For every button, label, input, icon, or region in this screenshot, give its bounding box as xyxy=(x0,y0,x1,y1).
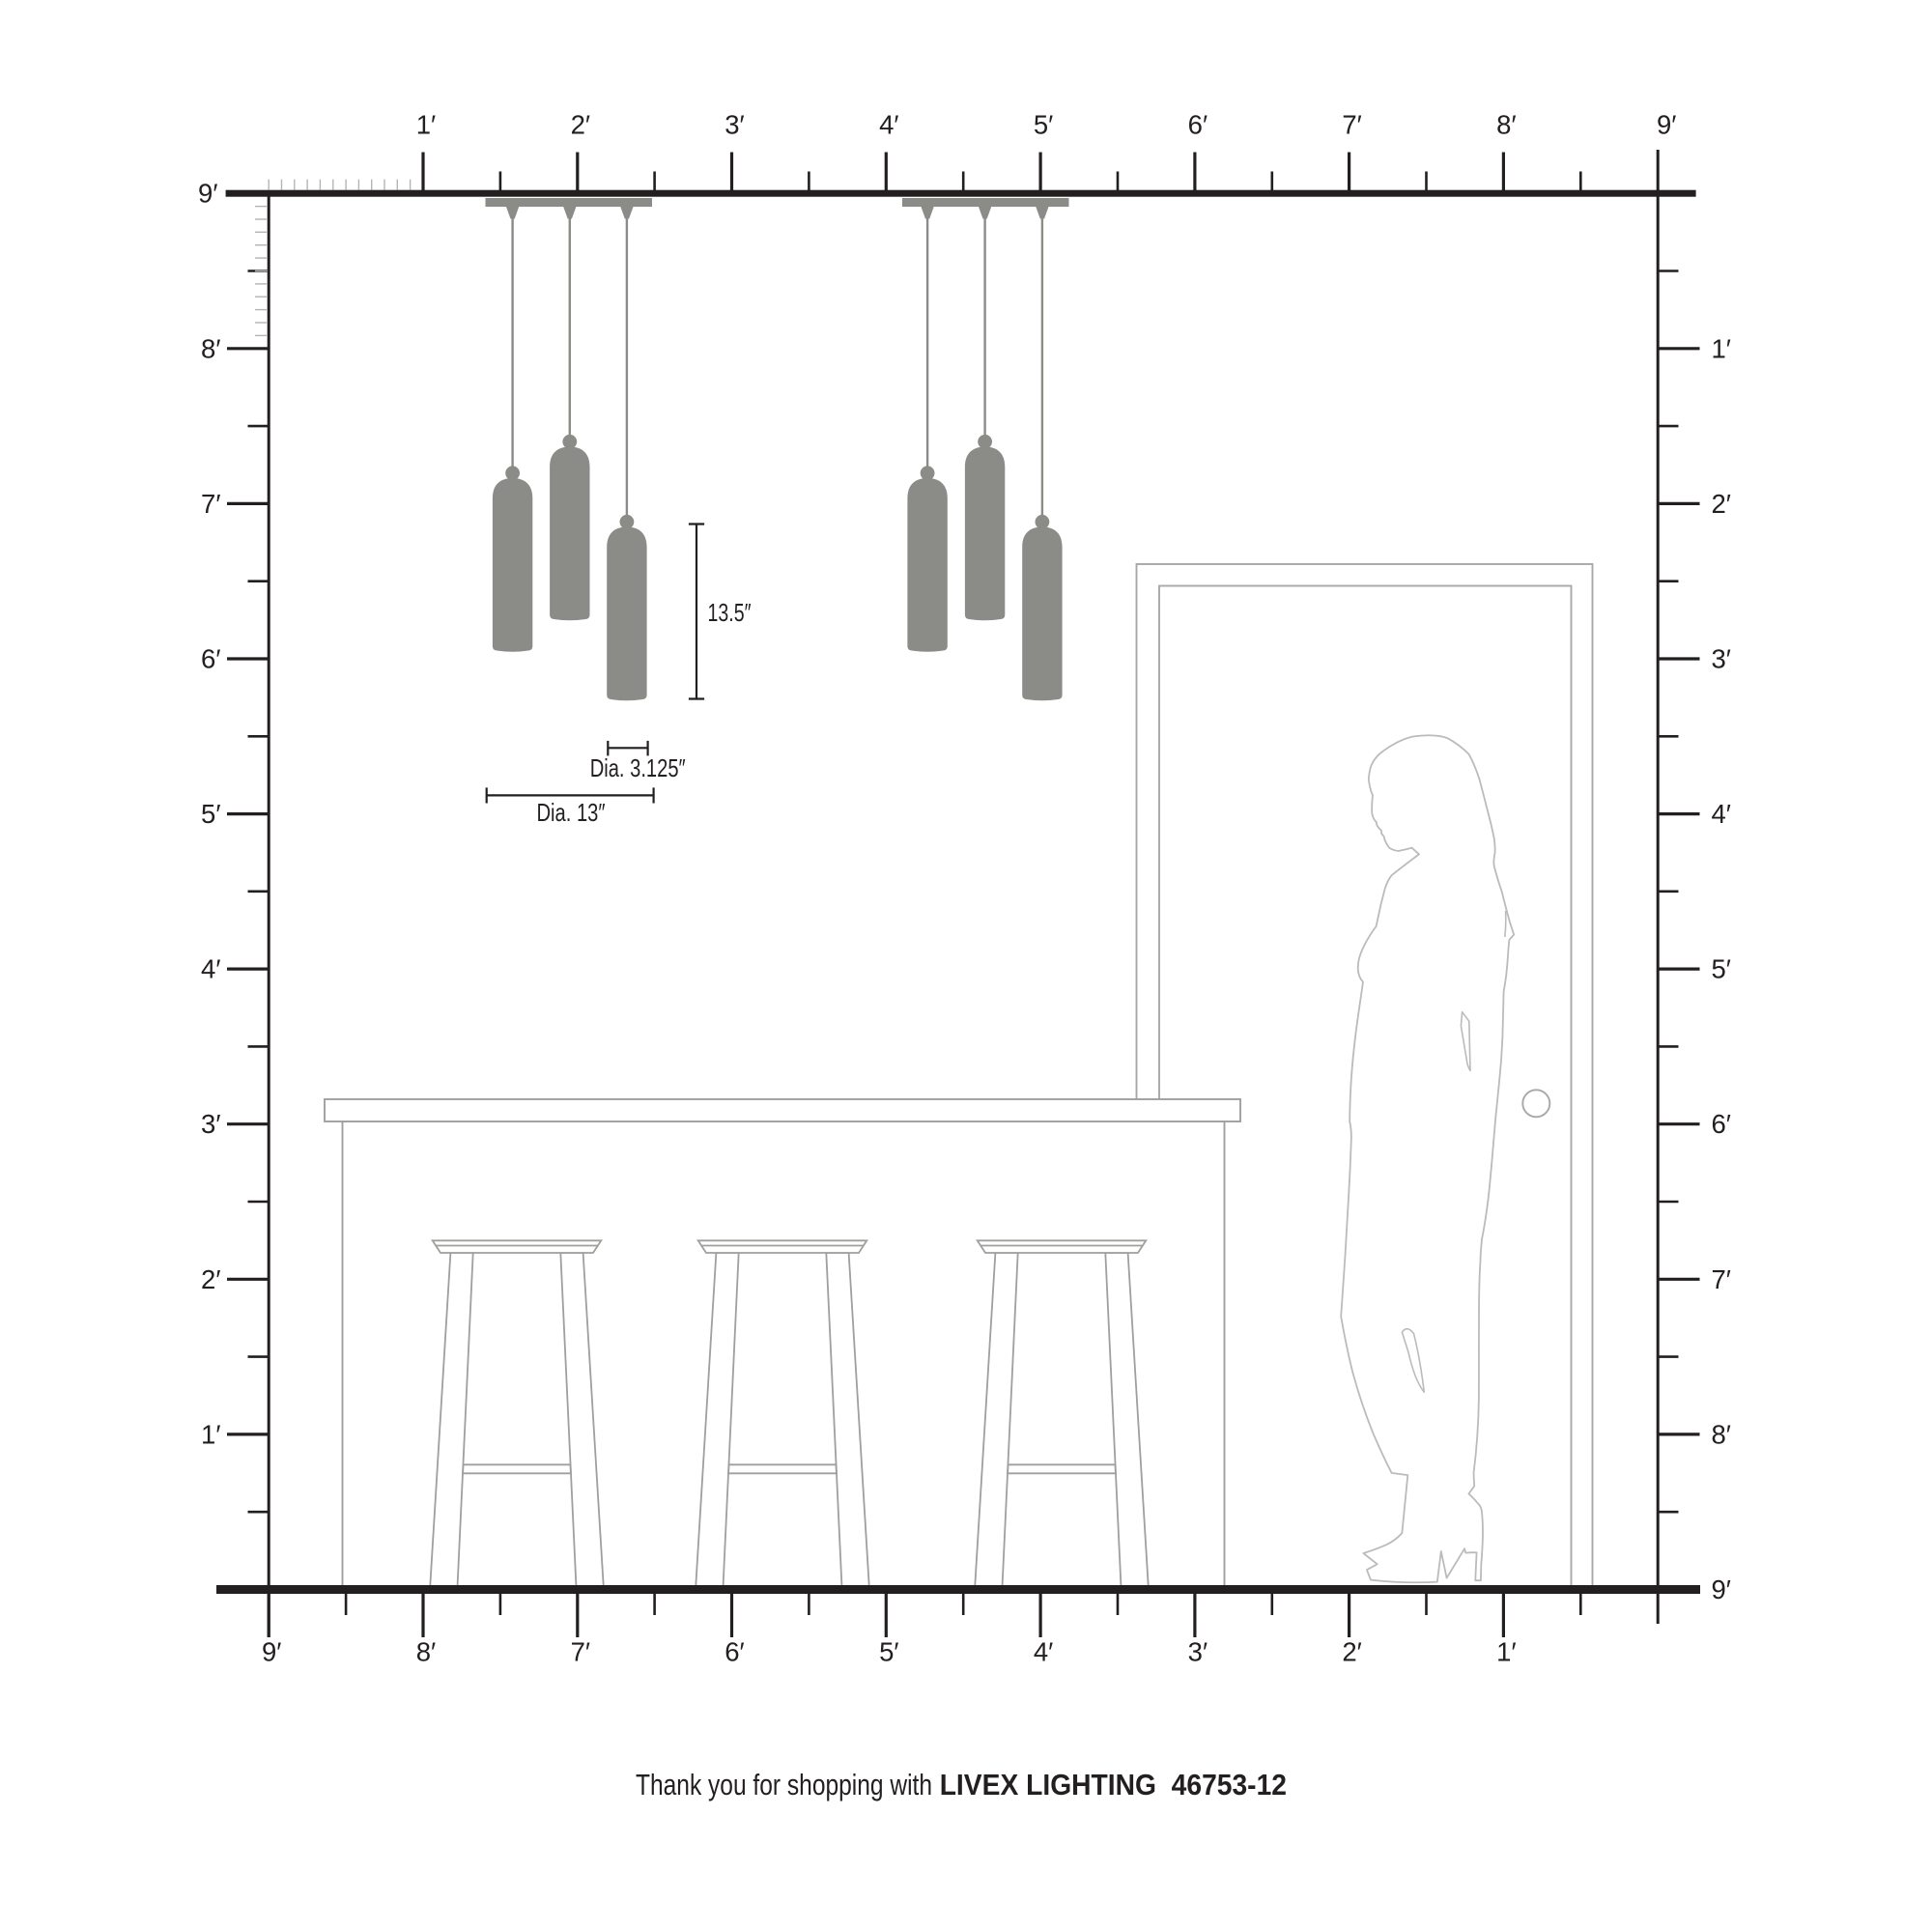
svg-text:6′: 6′ xyxy=(201,644,220,674)
svg-text:5′: 5′ xyxy=(1712,954,1731,984)
svg-text:6′: 6′ xyxy=(1712,1109,1731,1139)
svg-text:5′: 5′ xyxy=(1034,110,1053,140)
svg-text:4′: 4′ xyxy=(1034,1637,1053,1667)
svg-text:2′: 2′ xyxy=(1712,489,1731,519)
svg-text:Dia. 13″: Dia. 13″ xyxy=(537,798,606,827)
svg-text:3′: 3′ xyxy=(1188,1637,1207,1667)
svg-text:3′: 3′ xyxy=(724,110,744,140)
svg-text:8′: 8′ xyxy=(1712,1419,1731,1449)
svg-text:4′: 4′ xyxy=(201,954,220,984)
svg-text:LIVEX LIGHTING 46753-12: LIVEX LIGHTING 46753-12 xyxy=(940,1768,1287,1801)
svg-text:5′: 5′ xyxy=(879,1637,898,1667)
svg-text:1′: 1′ xyxy=(201,1419,220,1449)
svg-text:4′: 4′ xyxy=(1712,799,1731,829)
svg-text:1′: 1′ xyxy=(416,110,436,140)
svg-text:13.5″: 13.5″ xyxy=(708,598,752,627)
svg-text:1′: 1′ xyxy=(1712,333,1731,363)
svg-text:Dia. 3.125″: Dia. 3.125″ xyxy=(590,753,686,782)
svg-text:6′: 6′ xyxy=(1188,110,1207,140)
svg-text:8′: 8′ xyxy=(201,333,220,363)
svg-text:8′: 8′ xyxy=(416,1637,436,1667)
svg-text:2′: 2′ xyxy=(201,1264,220,1294)
svg-text:7′: 7′ xyxy=(1342,110,1361,140)
svg-text:8′: 8′ xyxy=(1496,110,1516,140)
svg-text:7′: 7′ xyxy=(571,1637,590,1667)
svg-text:9′: 9′ xyxy=(198,179,217,209)
svg-text:3′: 3′ xyxy=(1712,644,1731,674)
svg-text:6′: 6′ xyxy=(724,1637,744,1667)
svg-text:7′: 7′ xyxy=(1712,1264,1731,1294)
svg-text:3′: 3′ xyxy=(201,1109,220,1139)
svg-text:9′: 9′ xyxy=(1657,110,1676,140)
svg-text:5′: 5′ xyxy=(201,799,220,829)
svg-text:2′: 2′ xyxy=(571,110,590,140)
svg-text:2′: 2′ xyxy=(1342,1637,1361,1667)
svg-text:4′: 4′ xyxy=(879,110,898,140)
svg-text:1′: 1′ xyxy=(1496,1637,1516,1667)
svg-text:9′: 9′ xyxy=(1712,1574,1731,1604)
svg-text:Thank you for shopping with: Thank you for shopping with xyxy=(636,1768,932,1801)
svg-text:7′: 7′ xyxy=(201,489,220,519)
svg-text:9′: 9′ xyxy=(262,1637,281,1667)
